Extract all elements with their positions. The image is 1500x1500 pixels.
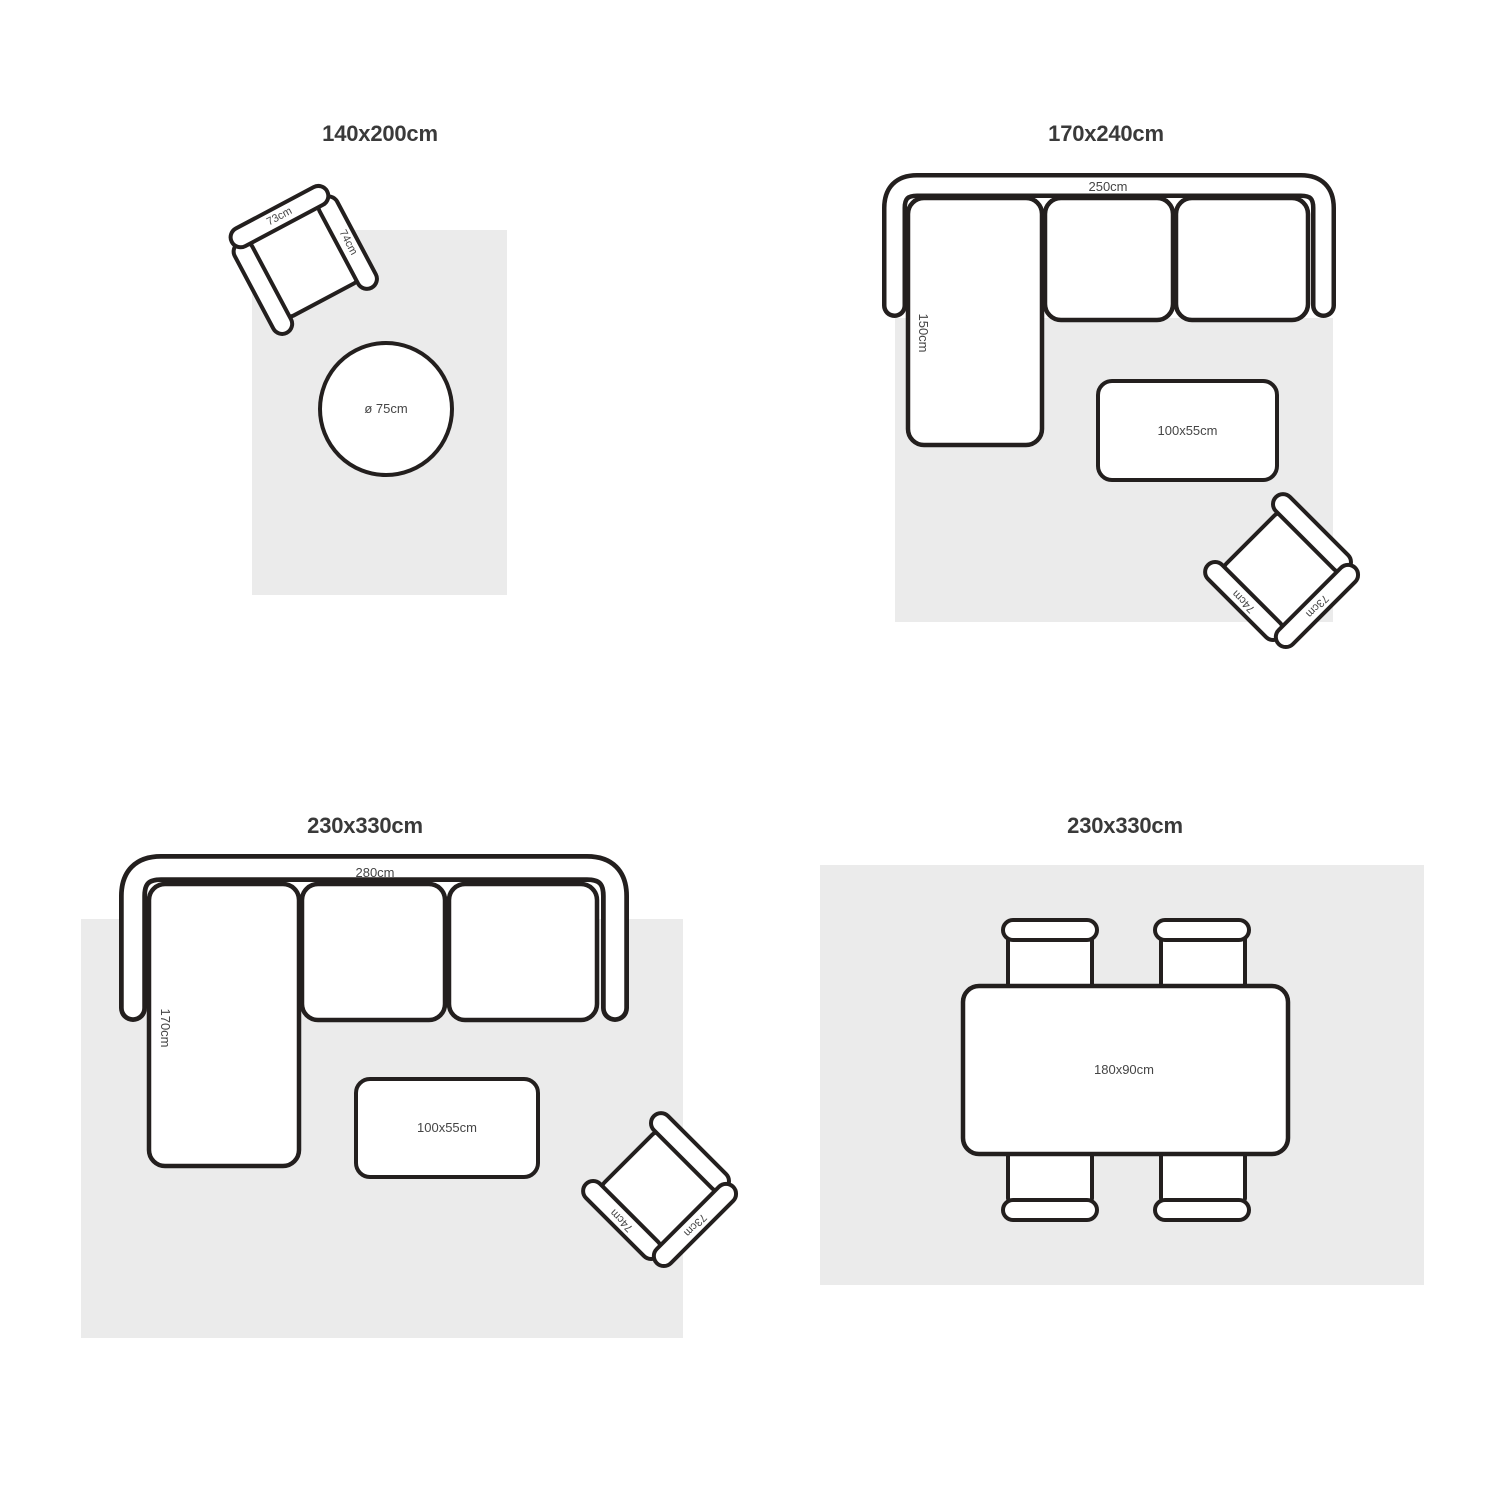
dining-chair-back <box>1155 1200 1249 1220</box>
layout-230x330-dining: 230x330cm 180x90cm <box>0 0 1500 1500</box>
dining-chair-back <box>1003 1200 1097 1220</box>
rug-size-guide-diagram: 140x200cm 74cm 73cm ø 75cm 170x240cm 2 <box>0 0 1500 1500</box>
rug-size-title: 230x330cm <box>1067 814 1183 838</box>
dining-table-dimension: 180x90cm <box>1094 1062 1154 1078</box>
dining-chair-back <box>1003 920 1097 940</box>
dining-chair-back <box>1155 920 1249 940</box>
